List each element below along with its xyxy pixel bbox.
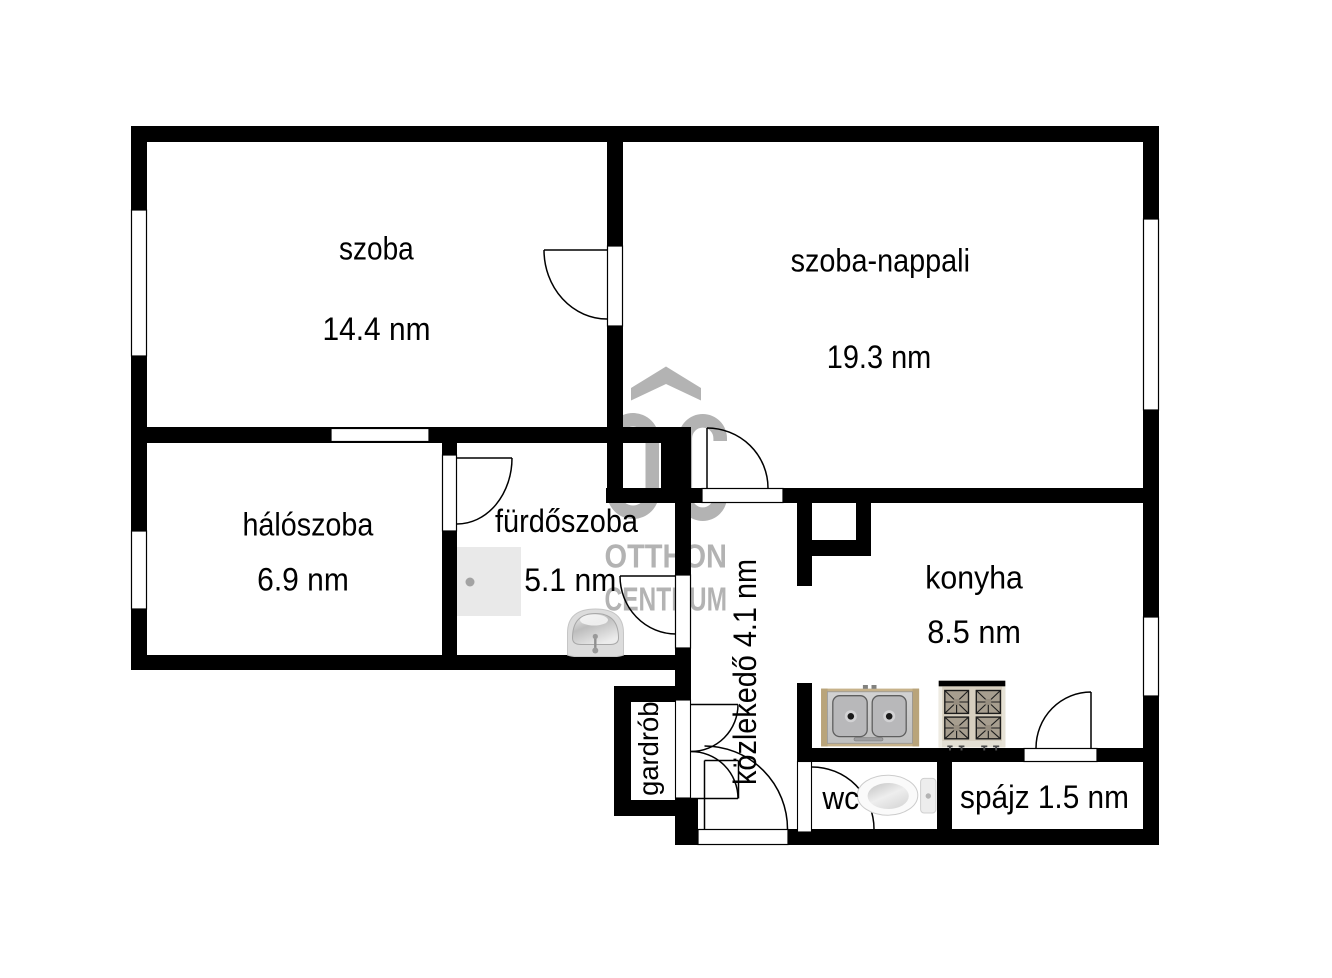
svg-text:konyha: konyha [925, 560, 1023, 596]
svg-text:spájz 1.5 nm: spájz 1.5 nm [960, 779, 1129, 815]
svg-text:wc: wc [821, 780, 859, 816]
svg-text:hálószoba: hálószoba [242, 507, 374, 543]
svg-text:fürdőszoba: fürdőszoba [495, 503, 639, 539]
svg-text:közlekedő 4.1 nm: közlekedő 4.1 nm [727, 559, 763, 785]
svg-text:CENTRUM: CENTRUM [605, 582, 728, 619]
svg-text:14.4 nm: 14.4 nm [323, 311, 431, 347]
svg-text:6.9 nm: 6.9 nm [257, 562, 349, 598]
svg-text:8.5 nm: 8.5 nm [927, 614, 1021, 650]
svg-text:gardrób: gardrób [633, 702, 664, 796]
svg-text:szoba-nappali: szoba-nappali [791, 243, 970, 279]
svg-text:5.1 nm: 5.1 nm [524, 562, 616, 598]
svg-text:19.3 nm: 19.3 nm [827, 339, 932, 375]
svg-text:szoba: szoba [339, 231, 414, 267]
svg-text:OTTHON: OTTHON [605, 539, 728, 576]
